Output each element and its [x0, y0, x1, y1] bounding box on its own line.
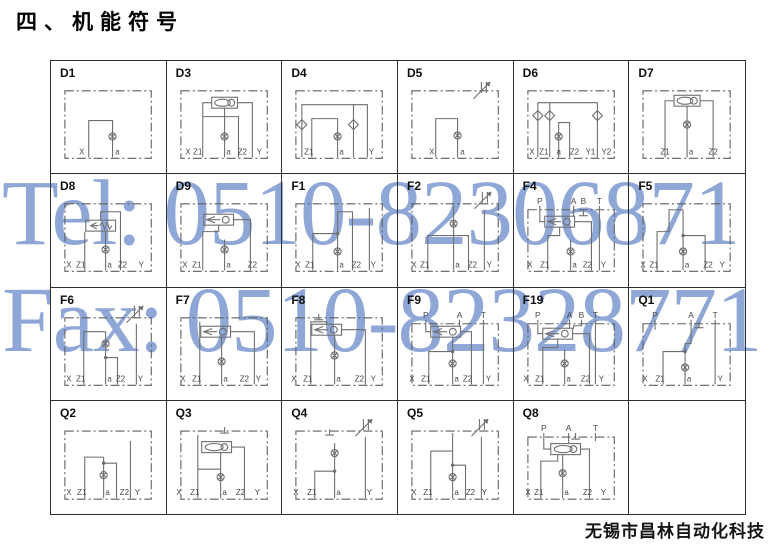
svg-text:X: X: [523, 374, 529, 383]
page-root: 四、机能符号 Tel: 0510-82306871 Fax: 0510-8232…: [0, 0, 769, 545]
circuit-diagram: XZ1aZ2YPAT: [398, 288, 513, 400]
svg-text:a: a: [105, 488, 110, 497]
symbol-cell-d8: D8XZ1aZ2Y: [51, 174, 167, 287]
svg-text:Z1: Z1: [539, 147, 549, 156]
symbol-cell-f9: F9XZ1aZ2YPAT: [398, 288, 514, 401]
symbol-cell-d3: D3XZ1aZ2Y: [167, 61, 283, 174]
symbol-cell-q8: Q8XZ1aZ2YPAT: [514, 401, 630, 514]
svg-text:Z2: Z2: [704, 261, 714, 270]
symbol-cell-d6: D6XZ1aZ2Y1Y2: [514, 61, 630, 174]
symbol-cell-f5: F5XZ1aZ2Y: [629, 174, 745, 287]
svg-text:Z2: Z2: [582, 488, 592, 497]
circuit-diagram: Xa: [51, 61, 166, 173]
circuit-diagram: XZ1aZ2Y: [167, 288, 282, 400]
svg-text:T: T: [592, 309, 597, 319]
svg-text:X: X: [66, 488, 72, 497]
svg-text:Z1: Z1: [305, 261, 315, 270]
svg-text:X: X: [411, 261, 417, 270]
circuit-diagram: XZ1aZ2Y: [398, 174, 513, 286]
circuit-diagram: XZ1aYPAT: [629, 288, 745, 400]
svg-text:X: X: [641, 261, 647, 270]
svg-text:Z1: Z1: [540, 261, 550, 270]
svg-text:a: a: [454, 488, 459, 497]
svg-text:A: A: [565, 423, 571, 433]
svg-text:a: a: [226, 261, 231, 270]
svg-text:T: T: [592, 423, 597, 433]
circuit-diagram: XZ1aZ2Y1Y2: [514, 61, 629, 173]
symbol-cell-q2: Q2XZ1aZ2Y: [51, 401, 167, 514]
symbols-table: D1XaD3XZ1aZ2YD4Z1aYD5XaD6XZ1aZ2Y1Y2D7Z1a…: [50, 60, 746, 515]
svg-text:A: A: [570, 196, 576, 206]
svg-text:Z2: Z2: [463, 374, 473, 383]
svg-text:a: a: [226, 147, 231, 156]
svg-text:P: P: [537, 196, 543, 206]
svg-text:Y: Y: [600, 488, 606, 497]
svg-text:Z1: Z1: [421, 374, 431, 383]
svg-text:Z1: Z1: [192, 261, 202, 270]
svg-text:Y: Y: [720, 261, 726, 270]
symbol-cell-f8: F8XZ1aZ2Y: [282, 288, 398, 401]
svg-text:a: a: [107, 374, 112, 383]
svg-text:Z2: Z2: [237, 147, 247, 156]
svg-text:Y: Y: [138, 374, 144, 383]
page-title: 四、机能符号: [16, 6, 184, 36]
svg-text:Z2: Z2: [235, 488, 245, 497]
svg-text:Y: Y: [255, 374, 261, 383]
svg-text:X: X: [294, 488, 300, 497]
svg-text:Y: Y: [487, 261, 493, 270]
circuit-diagram: XZ1aY: [282, 401, 397, 514]
svg-text:Z2: Z2: [239, 374, 249, 383]
svg-text:Z2: Z2: [120, 488, 130, 497]
svg-text:a: a: [460, 147, 465, 156]
svg-text:a: a: [115, 147, 120, 156]
svg-text:Z1: Z1: [192, 374, 202, 383]
circuit-diagram: XZ1aZ2: [167, 174, 282, 286]
symbol-cell-f6: F6XZ1aZ2Y: [51, 288, 167, 401]
svg-text:B: B: [580, 196, 586, 206]
svg-text:Z2: Z2: [118, 261, 128, 270]
symbol-cell-f1: F1XZ1aZ2Y: [282, 174, 398, 287]
svg-text:X: X: [79, 147, 85, 156]
svg-text:Z2: Z2: [116, 374, 126, 383]
svg-text:P: P: [541, 423, 547, 433]
svg-text:a: a: [564, 488, 569, 497]
svg-text:Y: Y: [600, 261, 606, 270]
svg-text:X: X: [182, 261, 188, 270]
svg-text:Z2: Z2: [355, 374, 365, 383]
svg-text:Z2: Z2: [582, 261, 592, 270]
svg-text:B: B: [578, 309, 584, 319]
svg-text:Y: Y: [139, 261, 145, 270]
svg-text:Y: Y: [371, 261, 377, 270]
svg-text:X: X: [429, 147, 435, 156]
svg-text:a: a: [687, 374, 692, 383]
svg-text:T: T: [481, 309, 486, 319]
symbol-cell-q4: Q4XZ1aY: [282, 401, 398, 514]
svg-text:T: T: [713, 309, 718, 319]
symbol-cell-f2: F2XZ1aZ2Y: [398, 174, 514, 287]
svg-text:Z1: Z1: [656, 374, 666, 383]
symbol-cell-f7: F7XZ1aZ2Y: [167, 288, 283, 401]
circuit-diagram: XZ1aZ2Y: [167, 401, 282, 514]
svg-text:Z2: Z2: [570, 147, 580, 156]
svg-text:Y: Y: [135, 488, 141, 497]
circuit-diagram: XZ1aZ2Y: [51, 288, 166, 400]
svg-text:Z1: Z1: [304, 147, 314, 156]
svg-text:X: X: [66, 374, 72, 383]
svg-text:Z1: Z1: [76, 374, 86, 383]
svg-text:Z1: Z1: [661, 147, 671, 156]
svg-text:A: A: [566, 309, 572, 319]
symbol-cell-d7: D7Z1aZ2: [629, 61, 745, 174]
svg-text:Z1: Z1: [650, 261, 660, 270]
circuit-diagram: Z1aY: [282, 61, 397, 173]
svg-text:Z1: Z1: [534, 488, 544, 497]
circuit-diagram: XZ1aZ2YPABT: [514, 174, 629, 286]
svg-text:a: a: [222, 488, 227, 497]
svg-text:a: a: [337, 488, 342, 497]
svg-text:X: X: [292, 374, 298, 383]
svg-text:Z1: Z1: [423, 488, 433, 497]
svg-text:a: a: [337, 374, 342, 383]
svg-text:X: X: [185, 147, 191, 156]
svg-text:Y: Y: [256, 147, 262, 156]
svg-text:a: a: [340, 261, 345, 270]
circuit-diagram: XZ1aZ2YPAT: [514, 401, 629, 514]
svg-text:Z1: Z1: [193, 147, 203, 156]
svg-text:Z2: Z2: [709, 147, 719, 156]
svg-text:X: X: [180, 374, 186, 383]
svg-text:X: X: [411, 488, 417, 497]
circuit-diagram: XZ1aZ2Y: [282, 288, 397, 400]
svg-text:X: X: [525, 488, 531, 497]
svg-text:T: T: [596, 196, 601, 206]
svg-text:Y: Y: [718, 374, 724, 383]
circuit-diagram: XZ1aZ2YPABT: [514, 288, 629, 400]
symbol-cell-f19: F19XZ1aZ2YPABT: [514, 288, 630, 401]
svg-text:X: X: [409, 374, 415, 383]
svg-text:a: a: [340, 147, 345, 156]
svg-text:a: a: [572, 261, 577, 270]
svg-text:Z1: Z1: [304, 374, 314, 383]
svg-text:Y2: Y2: [601, 147, 611, 156]
svg-text:Y: Y: [369, 147, 375, 156]
svg-text:a: a: [556, 147, 561, 156]
svg-text:A: A: [689, 309, 695, 319]
symbol-cell-f4: F4XZ1aZ2YPABT: [514, 174, 630, 287]
svg-text:Z2: Z2: [466, 488, 476, 497]
svg-text:Z2: Z2: [352, 261, 362, 270]
circuit-diagram: XZ1aZ2Y: [398, 401, 513, 514]
svg-text:X: X: [66, 261, 72, 270]
svg-text:Z1: Z1: [307, 488, 317, 497]
svg-text:Z2: Z2: [247, 261, 257, 270]
symbol-cell-d5: D5Xa: [398, 61, 514, 174]
company-name: 无锡市昌林自动化科技: [585, 517, 765, 542]
svg-text:Y1: Y1: [585, 147, 595, 156]
symbol-cell-d9: D9XZ1aZ2: [167, 174, 283, 287]
svg-text:a: a: [566, 374, 571, 383]
symbol-cell-d1: D1Xa: [51, 61, 167, 174]
symbol-cell-empty: [629, 401, 745, 514]
svg-text:Z1: Z1: [535, 374, 545, 383]
svg-text:Y: Y: [254, 488, 260, 497]
svg-text:P: P: [653, 309, 659, 319]
circuit-diagram: XZ1aZ2Y: [51, 174, 166, 286]
symbol-cell-q3: Q3XZ1aZ2Y: [167, 401, 283, 514]
svg-text:a: a: [107, 261, 112, 270]
svg-text:a: a: [454, 374, 459, 383]
svg-text:Y: Y: [482, 488, 488, 497]
svg-text:Z2: Z2: [581, 374, 591, 383]
svg-text:A: A: [457, 309, 463, 319]
symbol-cell-q1: Q1XZ1aYPAT: [629, 288, 745, 401]
svg-text:Y: Y: [371, 374, 377, 383]
svg-text:a: a: [689, 147, 694, 156]
circuit-diagram: Z1aZ2: [629, 61, 745, 173]
svg-text:Z1: Z1: [77, 488, 87, 497]
circuit-diagram: XZ1aZ2Y: [629, 174, 745, 286]
svg-text:X: X: [643, 374, 649, 383]
svg-text:Y: Y: [367, 488, 373, 497]
svg-text:Z1: Z1: [420, 261, 430, 270]
svg-text:Y: Y: [598, 374, 604, 383]
svg-text:P: P: [535, 309, 541, 319]
svg-text:a: a: [223, 374, 228, 383]
svg-text:Y: Y: [486, 374, 492, 383]
svg-text:P: P: [423, 309, 429, 319]
circuit-diagram: XZ1aZ2Y: [51, 401, 166, 514]
svg-text:X: X: [527, 261, 533, 270]
svg-text:a: a: [455, 261, 460, 270]
symbol-cell-q5: Q5XZ1aZ2Y: [398, 401, 514, 514]
svg-text:Z1: Z1: [190, 488, 200, 497]
svg-text:Z1: Z1: [76, 261, 86, 270]
circuit-diagram: Xa: [398, 61, 513, 173]
symbol-cell-d4: D4Z1aY: [282, 61, 398, 174]
circuit-diagram: XZ1aZ2Y: [167, 61, 282, 173]
svg-text:a: a: [685, 261, 690, 270]
svg-text:Z2: Z2: [468, 261, 478, 270]
svg-text:X: X: [296, 261, 302, 270]
circuit-diagram: XZ1aZ2Y: [282, 174, 397, 286]
svg-text:X: X: [176, 488, 182, 497]
svg-text:X: X: [529, 147, 535, 156]
